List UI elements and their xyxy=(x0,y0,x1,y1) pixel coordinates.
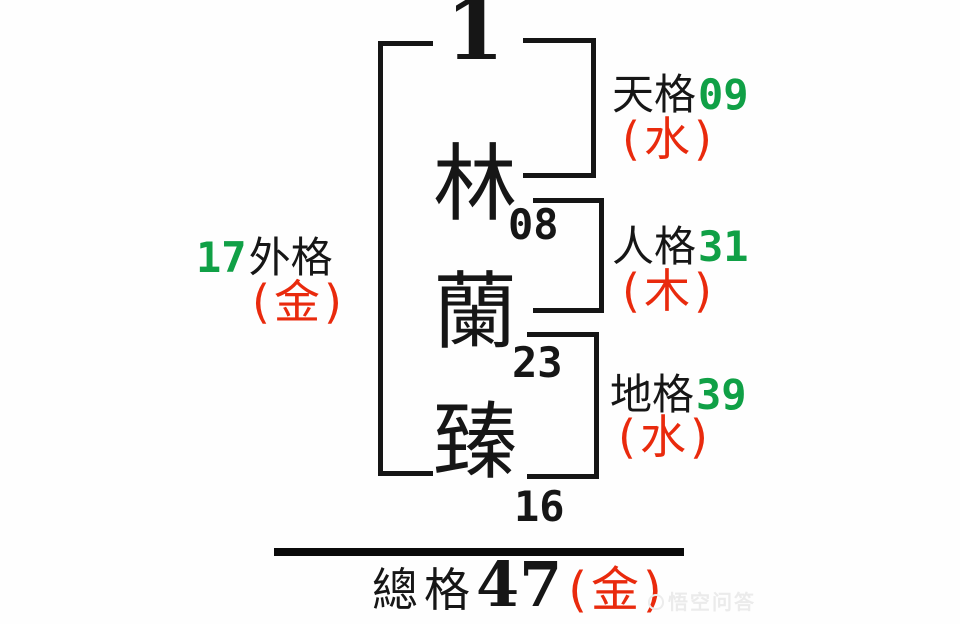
heaven-grid-bracket xyxy=(523,38,596,178)
total-grid-label: 總格 xyxy=(372,567,476,613)
person-grid-bracket xyxy=(533,198,604,313)
surname-prefix-number: 1 xyxy=(430,0,520,72)
person-grid-label-row: 人格31 xyxy=(612,226,749,268)
outer-grid-bracket xyxy=(378,41,433,476)
name-numerology-diagram: 1 林 蘭 臻 08 23 16 天格09 (水) 人格31 (木) 地格39 … xyxy=(0,0,960,624)
person-grid-element: (木) xyxy=(622,268,716,314)
total-grid-row: 總格 47 (金) xyxy=(372,554,666,616)
earth-grid-bracket xyxy=(527,332,599,479)
outer-grid-label-row: 17外格 xyxy=(196,237,333,279)
earth-grid-element: (水) xyxy=(618,414,712,460)
heaven-grid-element: (水) xyxy=(622,116,716,162)
name-character-last: 臻 xyxy=(415,400,535,484)
heaven-grid-label-row: 天格09 xyxy=(612,74,749,116)
watermark: 悟空问答 xyxy=(648,592,756,612)
total-grid-value: 47 xyxy=(476,554,562,616)
watermark-text: 悟空问答 xyxy=(668,592,756,612)
outer-grid-element: (金) xyxy=(252,279,346,325)
stroke-count-last: 16 xyxy=(514,486,565,528)
outer-grid-value: 17 xyxy=(196,233,247,282)
wukong-logo-icon xyxy=(648,594,664,610)
